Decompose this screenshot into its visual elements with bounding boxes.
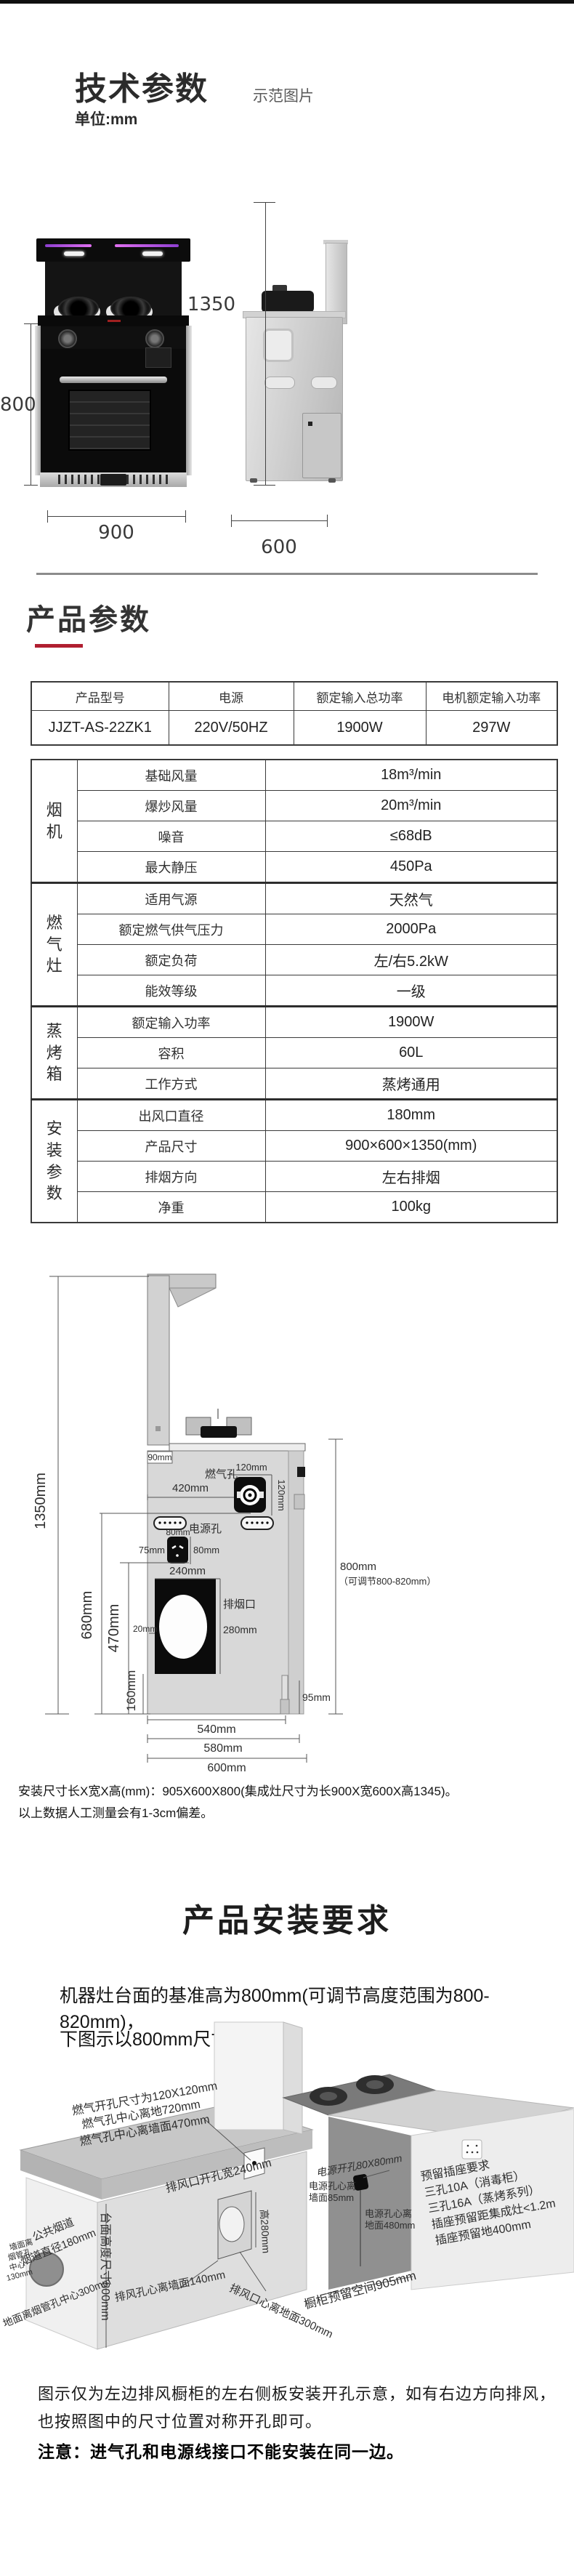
dim-tick-1350-bottom: [254, 485, 275, 486]
spec-value-cell: 一级: [265, 975, 557, 1007]
spec-group-cell: 烟机: [31, 760, 77, 883]
dim-1350-label: 1350: [186, 294, 237, 315]
power-hole-label: 电源孔: [189, 1523, 222, 1535]
counter-height-label: 台面高度尺寸800mm: [99, 2212, 112, 2320]
cooktop-indicator: [108, 320, 121, 322]
hood-light-strip-right: [115, 244, 179, 247]
table-row: 噪音≤68dB: [31, 821, 557, 852]
spec-group-cell: 安装参数: [31, 1100, 77, 1223]
spec-label-cell: 适用气源: [77, 883, 265, 914]
model-table-header: 产品型号: [31, 682, 169, 711]
footer-note-1: 图示仅为左边排风橱柜的左右侧板安装开孔示意，如有右边方向排风，: [38, 2381, 556, 2404]
model-table-header: 电机额定输入功率: [426, 682, 557, 711]
dim-600-label: 600mm: [207, 1762, 246, 1774]
dim-900-label: 900: [91, 522, 142, 544]
power-floor-label-1: 电源孔心离: [365, 2208, 412, 2219]
hood-led-right: [142, 251, 163, 256]
dim-80right-label: 80mm: [193, 1545, 219, 1555]
power-floor-label-2: 地面480mm: [365, 2220, 415, 2231]
wall-socket: [462, 2140, 482, 2159]
spec-label-cell: 排烟方向: [77, 1162, 265, 1192]
dim-tick-900-r: [185, 510, 186, 523]
footer-note-warning: 注意：进气孔和电源线接口不能安装在同一边。: [38, 2438, 404, 2463]
base-center-plate: [100, 474, 126, 486]
spec-value-cell: 900×600×1350(mm): [265, 1131, 557, 1162]
spec-value-cell: 100kg: [265, 1192, 557, 1223]
vent-height-label: 高280mm: [258, 2209, 272, 2253]
page-title: 技术参数: [75, 63, 209, 109]
table-row: 烟机 基础风量 18m³/min: [31, 760, 557, 791]
spec-label-cell: 出风口直径: [77, 1100, 265, 1131]
table-row: 排烟方向左右排烟: [31, 1162, 557, 1192]
table-row: 额定燃气供气压力2000Pa: [31, 914, 557, 945]
base-vent-left: [58, 475, 100, 484]
spec-table: 烟机 基础风量 18m³/min 爆炒风量20m³/min 噪音≤68dB 最大…: [31, 759, 558, 1223]
model-table-value: JJZT-AS-22ZK1: [31, 711, 169, 746]
page-subtitle: 示范图片: [253, 84, 314, 106]
table-row: 产品型号 电源 额定输入总功率 电机额定输入功率: [31, 682, 557, 711]
table-row: 爆炒风量20m³/min: [31, 791, 557, 821]
spec-group-cell: 燃气灶: [31, 883, 77, 1007]
section-divider: [36, 573, 538, 575]
exhaust-label: 排烟口: [223, 1598, 256, 1611]
dim-tick-600-r: [327, 515, 328, 527]
control-display: [145, 347, 171, 368]
spec-label-cell: 额定负荷: [77, 945, 265, 975]
dim-280-label: 280mm: [223, 1624, 257, 1635]
dim-tick-900-l: [47, 510, 48, 523]
spec-label-cell: 额定输入功率: [77, 1007, 265, 1038]
side-foot-left: [250, 478, 257, 483]
side-foot-right: [328, 478, 336, 483]
top-border-bar: [0, 0, 574, 4]
dim-160-label: 160mm: [124, 1670, 138, 1712]
spec-label-cell: 爆炒风量: [77, 791, 265, 821]
dim-tick-800-bottom: [24, 485, 38, 486]
dim-800-range-label: （可调节800-820mm）: [339, 1576, 436, 1587]
base-vent-right: [126, 475, 169, 484]
install-3d-diagram: 燃气开孔尺寸为120X120mm 燃气孔中心离地720mm 燃气孔中心离墙面47…: [0, 2013, 574, 2362]
dim-470-label: 470mm: [106, 1604, 122, 1653]
spec-value-cell: 18m³/min: [265, 760, 557, 791]
table-row: 燃气灶 适用气源 天然气: [31, 883, 557, 914]
spec-sheet-page: 技术参数 示范图片 单位:mm: [0, 0, 574, 2576]
table-row: 能效等级一级: [31, 975, 557, 1007]
spec-label-cell: 净重: [77, 1192, 265, 1223]
knob-left: [58, 329, 77, 348]
table-row: 蒸烤箱 额定输入功率 1900W: [31, 1007, 557, 1038]
dim-75-label: 75mm: [139, 1545, 165, 1555]
dim-line-900: [47, 516, 185, 517]
dim-580-label: 580mm: [203, 1742, 242, 1755]
stove-backsplash: [214, 2022, 283, 2130]
model-table-value: 220V/50HZ: [169, 711, 294, 746]
dim-tick-800-top: [24, 323, 38, 324]
spec-label-cell: 额定燃气供气压力: [77, 914, 265, 945]
spec-value-cell: 左右排烟: [265, 1162, 557, 1192]
dim-120v-label: 120mm: [276, 1479, 287, 1510]
title-underline: [35, 644, 83, 648]
install-section-title: 产品安装要求: [0, 1894, 574, 1941]
spec-label-cell: 容积: [77, 1038, 265, 1068]
dim-680-label: 680mm: [79, 1591, 95, 1640]
oven-handle: [60, 377, 167, 383]
spec-value-cell: 60L: [265, 1038, 557, 1068]
install-side-diagram: 1350mm 90mm 燃气孔 120mm 120mm 420mm 电源孔 80…: [0, 1265, 574, 1795]
model-table-value: 297W: [426, 711, 557, 746]
spec-label-cell: 基础风量: [77, 760, 265, 791]
spec-value-cell: 蒸烤通用: [265, 1068, 557, 1100]
footer-note-2: 也按照图中的尺寸位置对称开孔即可。: [38, 2409, 322, 2432]
spec-value-cell: 180mm: [265, 1100, 557, 1131]
spec-value-cell: 20m³/min: [265, 791, 557, 821]
dim-90mm-label: 90mm: [147, 1452, 171, 1462]
dim-800-label: 800: [0, 394, 28, 416]
spec-label-cell: 噪音: [77, 821, 265, 852]
side-burner: [262, 291, 314, 313]
dim-20-label: 20mm: [133, 1624, 157, 1634]
spec-label-cell: 工作方式: [77, 1068, 265, 1100]
unit-note: 单位:mm: [75, 108, 137, 129]
side-handle-slot-1: [264, 377, 295, 389]
spec-value-cell: 450Pa: [265, 852, 557, 883]
spec-value-cell: 天然气: [265, 883, 557, 914]
power-wall-label-2: 墙面85mm: [309, 2192, 354, 2203]
dim-95-label: 95mm: [302, 1691, 331, 1703]
table-row: 最大静压450Pa: [31, 852, 557, 883]
install-note-2: 以上数据人工测量会有1-3cm偏差。: [18, 1803, 213, 1821]
model-table-value: 1900W: [294, 711, 426, 746]
power-wall-label-1: 电源孔心离: [309, 2181, 356, 2191]
hood-led-left: [64, 251, 84, 256]
model-table-header: 额定输入总功率: [294, 682, 426, 711]
dim-line-1350: [265, 202, 266, 485]
spec-group-cell: 蒸烤箱: [31, 1007, 77, 1100]
table-row: 安装参数 出风口直径 180mm: [31, 1100, 557, 1131]
gas-hole-feature: [234, 1477, 266, 1513]
table-row: JJZT-AS-22ZK1 220V/50HZ 1900W 297W: [31, 711, 557, 746]
table-row: 净重100kg: [31, 1192, 557, 1223]
dim-540-label: 540mm: [197, 1723, 235, 1736]
spec-value-cell: 左/右5.2kW: [265, 945, 557, 975]
side-handle-slot-2: [311, 377, 337, 389]
oven-window: [68, 390, 151, 451]
dim-80top-label: 80mm: [166, 1527, 190, 1537]
side-window: [263, 329, 294, 362]
hood-light-strip-left: [45, 244, 92, 247]
gas-hole-label: 燃气孔: [205, 1468, 238, 1481]
side-panel-dot: [308, 422, 312, 426]
table-row: 产品尺寸900×600×1350(mm): [31, 1131, 557, 1162]
model-table: 产品型号 电源 额定输入总功率 电机额定输入功率 JJZT-AS-22ZK1 2…: [31, 681, 558, 746]
spec-value-cell: 2000Pa: [265, 914, 557, 945]
dim-tick-600-l: [231, 515, 232, 527]
model-table-header: 电源: [169, 682, 294, 711]
dim-800-label: 800mm: [340, 1561, 376, 1573]
exhaust-outlet-feature: [155, 1579, 216, 1674]
knob-right: [145, 329, 164, 348]
cabinet-recess: [328, 2117, 411, 2290]
spec-label-cell: 产品尺寸: [77, 1131, 265, 1162]
dim-420-label: 420mm: [172, 1482, 209, 1494]
spec-value-cell: 1900W: [265, 1007, 557, 1038]
params-section-title: 产品参数: [26, 596, 151, 638]
dim-tick-1350-top: [254, 202, 275, 203]
dim-1350mm-label: 1350mm: [33, 1473, 49, 1529]
dim-240-label: 240mm: [169, 1565, 206, 1577]
spec-label-cell: 最大静压: [77, 852, 265, 883]
table-row: 容积60L: [31, 1038, 557, 1068]
dim-120h-label: 120mm: [235, 1462, 267, 1473]
body-trim-right: [186, 326, 192, 475]
table-row: 额定负荷左/右5.2kW: [31, 945, 557, 975]
install-note-1: 安装尺寸长X宽X高(mm)：905X600X800(集成灶尺寸为长900X宽60…: [18, 1781, 458, 1799]
table-row: 工作方式蒸烤通用: [31, 1068, 557, 1100]
hood-top-panel: [36, 238, 190, 262]
spec-label-cell: 能效等级: [77, 975, 265, 1007]
dim-line-600: [231, 520, 327, 521]
spec-value-cell: ≤68dB: [265, 821, 557, 852]
dim-600-label: 600: [254, 536, 304, 558]
